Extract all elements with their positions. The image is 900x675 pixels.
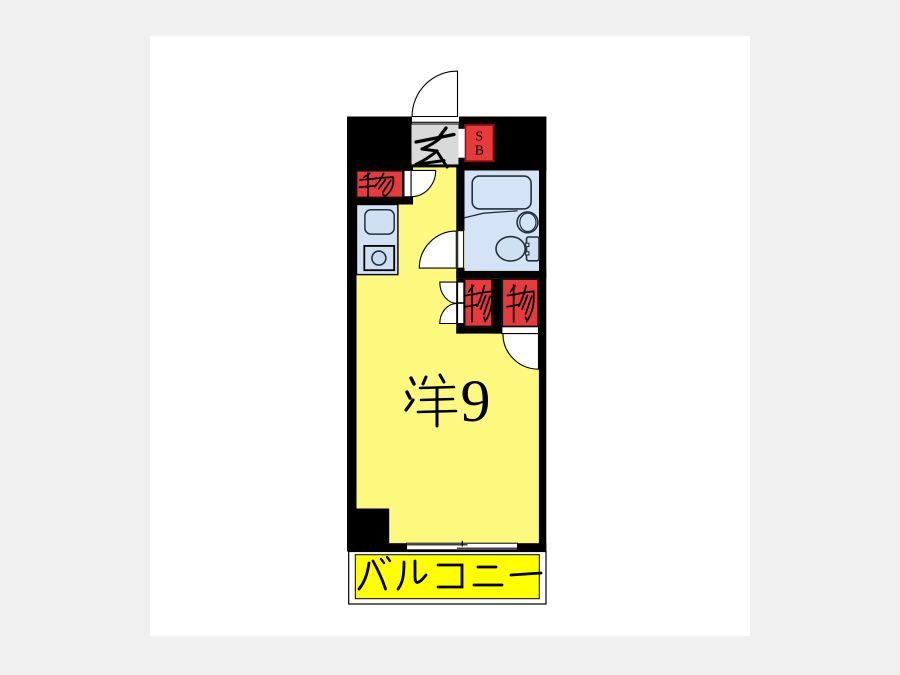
- svg-text:B: B: [475, 144, 484, 159]
- svg-text:S: S: [475, 130, 483, 145]
- svg-text:9: 9: [461, 368, 491, 434]
